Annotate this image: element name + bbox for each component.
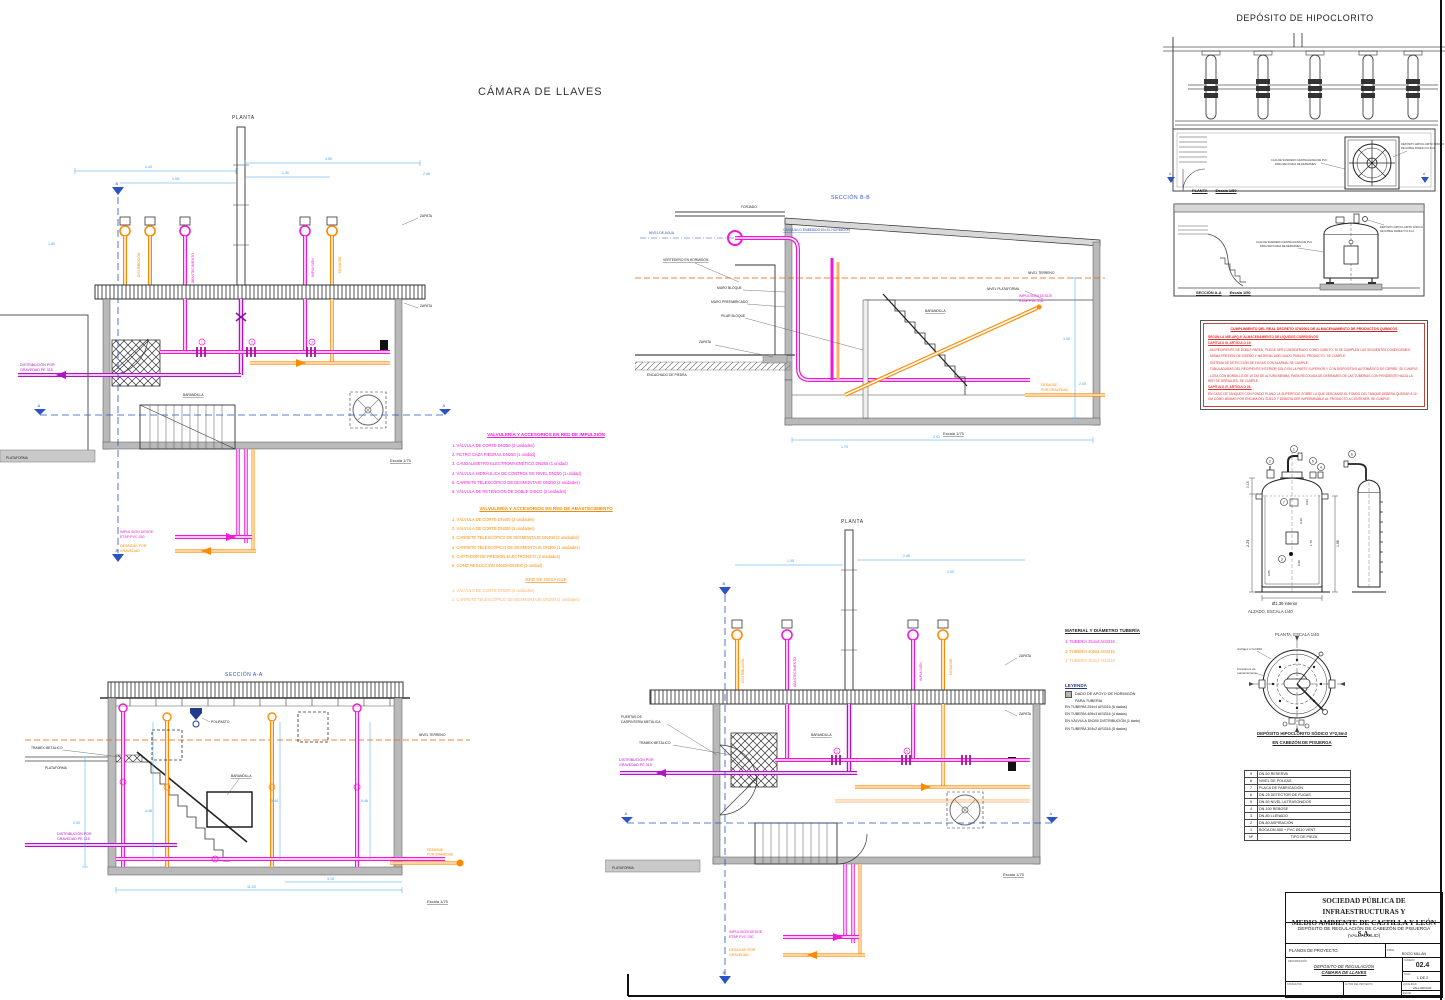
svg-text:B: B (723, 581, 726, 586)
title-block: SOCIEDAD PÚBLICA DE INFRAESTRUCTURAS Y M… (1285, 892, 1443, 998)
svg-text:6: 6 (1351, 453, 1353, 457)
svg-text:DE DOBLE PARED V=2,5m3: DE DOBLE PARED V=2,5m3 (1380, 229, 1414, 233)
svg-text:CAJA DE SUMIDERO CENTRALIZADA: CAJA DE SUMIDERO CENTRALIZADA DE PVC (1271, 158, 1327, 162)
plan-bottom-drawing: PLANTA 1.95 2.46 1.00 DISTRIBUCIÓN ABAST… (605, 505, 1065, 990)
drawing-title: DENOMINACIÓN DEPÓSITO DE REGULACIÓN CÁMA… (1286, 958, 1402, 981)
svg-text:2.00: 2.00 (1079, 382, 1086, 386)
table-row: 6DN-25 DETECTOR DE FUGAS (1245, 792, 1351, 799)
svg-text:1.00: 1.00 (947, 570, 954, 574)
svg-text:B: B (723, 970, 726, 975)
svg-text:IMPULSIÓN DESDE: IMPULSIÓN DESDE (1019, 293, 1053, 298)
localidad-cell: LOCALIDADVALLADOLID (1402, 982, 1442, 990)
svg-text:1.40: 1.40 (282, 171, 289, 175)
table-row: 3DN-80 LLENADO (1245, 813, 1351, 820)
svg-text:4.50: 4.50 (325, 157, 332, 161)
svg-text:0.90: 0.90 (1297, 560, 1301, 566)
dims: 1.95 2.46 1.00 (735, 554, 1025, 574)
fan-icon (947, 792, 983, 828)
svg-text:PARA RECOGIDA DE DERRAMES: PARA RECOGIDA DE DERRAMES (1275, 162, 1316, 166)
svg-text:PLATAFORMA: PLATAFORMA (45, 766, 68, 770)
legend-item: 1. VÁLVULA DE CORTE DN400 (2 unidades) (450, 515, 642, 524)
tramex-grating (112, 340, 160, 386)
svg-text:A: A (38, 403, 41, 408)
svg-text:0.30: 0.30 (1299, 518, 1303, 524)
svg-text:1.70: 1.70 (841, 445, 848, 449)
svg-text:5: 5 (251, 340, 253, 344)
apq-line: - UN RECIPIENTE DE DOBLE PARED, PUEDE SE… (1208, 348, 1420, 353)
svg-text:3: 3 (1281, 558, 1283, 562)
svg-text:2.29: 2.29 (1246, 540, 1250, 547)
section-bb-scale: Escala 1/75 (943, 431, 965, 436)
svg-text:FORJADO: FORJADO (741, 205, 757, 209)
plan-top-scale: Escala 1/75 (390, 458, 412, 463)
svg-text:NIVEL TERRENO: NIVEL TERRENO (1028, 271, 1055, 275)
vertical-pipes (119, 704, 361, 867)
svg-text:GRAVEDAD: GRAVEDAD (120, 549, 140, 553)
sheet-count: HOJA 1 DE 2 (1403, 972, 1442, 981)
table-row: 8NIVEL DE POLEAS (1245, 778, 1351, 785)
apq-line: CAPÍTULO IV, ARTÍCULO 24: (1208, 385, 1420, 390)
svg-text:4.48: 4.48 (145, 809, 152, 813)
hipo-section-drawing: CAJA DE SUMIDERO CENTRALIZADA DE PVC PAR… (1168, 198, 1430, 303)
pipe-runs: 1 5 (620, 704, 1030, 801)
parts-table: 9DN-50 RESERVA 8NIVEL DE POLEAS 7PLACA D… (1244, 770, 1351, 841)
svg-text:3.40: 3.40 (1063, 337, 1070, 341)
svg-text:PLATAFORMA: PLATAFORMA (612, 866, 635, 870)
svg-text:ABASTECIMIENTO: ABASTECIMIENTO (793, 657, 797, 687)
svg-text:7: 7 (1283, 501, 1285, 505)
sheet-border-corner (627, 974, 629, 996)
svg-text:3: 3 (311, 340, 313, 344)
svg-text:IMPULSIÓN DESDE: IMPULSIÓN DESDE (120, 529, 154, 534)
svg-text:A: A (1423, 172, 1426, 176)
manifold-pipes (1163, 33, 1445, 191)
apq-line: - LOSA CON BORDILLO DE 10 CM DE ALTURA M… (1208, 374, 1420, 384)
svg-text:NIVEL PLATAFORMA: NIVEL PLATAFORMA (987, 287, 1020, 291)
svg-text:DESAGÜE: DESAGÜE (427, 848, 444, 852)
leyenda-line: EN TUBERÍA 254x4 AISI316 (6 dados) (1065, 704, 1240, 711)
svg-text:0.15: 0.15 (1246, 481, 1250, 488)
table-row: 9DN-50 RESERVA (1245, 771, 1351, 778)
svg-text:1.95: 1.95 (787, 559, 794, 563)
svg-text:ZAPATA: ZAPATA (1019, 654, 1032, 658)
svg-text:1: 1 (836, 749, 838, 753)
section-aa-title: SECCIÓN A-A (225, 671, 263, 678)
svg-text:PUERTAS DE: PUERTAS DE (621, 715, 643, 719)
svg-text:MURO PREFABRICADO: MURO PREFABRICADO (711, 300, 748, 304)
svg-text:5.46: 5.46 (361, 799, 368, 803)
svg-text:CAJA DE SUMIDERO CENTRALIZADA: CAJA DE SUMIDERO CENTRALIZADA DE PVC (1256, 240, 1312, 244)
apq-line: CAPÍTULO III, ARTÍCULO 19: (1208, 341, 1420, 346)
polipasto-icon (190, 708, 202, 727)
leyenda-dado-1: DADO DE APOYO DE HORMIGÓN (1075, 691, 1135, 698)
svg-text:1.60: 1.60 (48, 242, 55, 246)
svg-text:1: 1 (1293, 448, 1295, 452)
svg-text:2.40: 2.40 (145, 165, 152, 169)
dist-label-2: GRAVEDAD PE 315 (20, 368, 53, 372)
svg-text:DESAGÜE POR: DESAGÜE POR (729, 948, 756, 952)
apq-title: CUMPLIMIENTO DEL REAL DECRETO 379/2001 D… (1208, 327, 1420, 331)
zapata-callouts: ZAPATA ZAPATA (1005, 654, 1032, 716)
material-item: 3. TUBERÍA 304x2 AISI316 (1065, 656, 1240, 666)
svg-text:DISTRIBUCIÓN POR: DISTRIBUCIÓN POR (619, 757, 654, 762)
svg-text:NIVEL DE AGUA: NIVEL DE AGUA (649, 231, 675, 235)
svg-text:IMPULSIÓN DESDE: IMPULSIÓN DESDE (729, 929, 763, 934)
legend-item: 4. VÁLVULA HIDRÁULICA DE CONTROL DE NIVE… (450, 469, 642, 478)
legend-abastecimiento-title: VALVULERÍA Y ACCESORIOS EN RED DE ABASTE… (450, 506, 642, 511)
legend-desague-title: RED DE DESAGÜE (450, 577, 642, 582)
svg-text:mantenimiento: mantenimiento (1237, 671, 1257, 675)
svg-text:2: 2 (214, 857, 216, 861)
svg-text:Ø1.36 interior: Ø1.36 interior (1272, 601, 1298, 606)
svg-text:GRAVEDAD PE 315: GRAVEDAD PE 315 (619, 763, 652, 767)
leyenda-title: LEYENDA (1065, 683, 1240, 688)
svg-text:DESAGÜE: DESAGÜE (949, 658, 953, 675)
left-platform (0, 315, 95, 462)
tramex-grating (731, 733, 777, 787)
roof (100, 682, 410, 706)
hipo-plan-label: PLANTAEscala 1/50 (1192, 188, 1244, 193)
svg-text:3.15: 3.15 (327, 877, 334, 881)
svg-text:ETAP PVC 250: ETAP PVC 250 (1019, 299, 1043, 303)
legend-item: 2. FILTRO CAZA PIEDRAS DN250 (1 unidad) (450, 450, 642, 459)
svg-text:ENCACHADO DE PIEDRA: ENCACHADO DE PIEDRA (647, 373, 688, 377)
legend-item: 5. CARRETE TELESCÓPICO DE DESMONTAJE DN2… (450, 478, 642, 487)
legend-item: 2. CARRETE TELESCÓPICO DE DESMONTAJE DN2… (450, 595, 642, 604)
tank-side (1344, 461, 1386, 592)
svg-text:IMPULSIÓN: IMPULSIÓN (918, 662, 923, 681)
center-wall (233, 127, 249, 285)
svg-text:IMPULSIÓN: IMPULSIÓN (310, 258, 315, 277)
svg-text:B: B (116, 548, 119, 553)
section-line-b: B B (719, 581, 731, 984)
section-aa-drawing: SECCIÓN A-A POLIPASTO NIVEL TERRENO TRAM… (25, 662, 470, 907)
svg-text:POR GRAVEDAD: POR GRAVEDAD (1041, 388, 1069, 392)
svg-text:2.46: 2.46 (903, 554, 910, 558)
section-bb-drawing: SECCIÓN B-B FORJADO NIVEL DE AGUA VERTED… (635, 190, 1105, 480)
section-bb-title: SECCIÓN B-B (831, 194, 870, 201)
svg-text:A: A (1050, 811, 1053, 816)
legend-item: 1. VÁLVULA DE CORTE DN200 (2 unidades) (450, 586, 642, 595)
sheet-number: NÚMERO 02.4 (1403, 958, 1442, 972)
bottom-pipes (783, 864, 865, 959)
leyenda-line: EN VÁLVULA DN300 DISTRIBUCIÓN (1 dado) (1065, 718, 1240, 725)
apq-line: - MISMA PRESIÓN DE DISEÑO Y MATERIAL ADE… (1208, 354, 1420, 359)
sheet-border-right (1440, 0, 1442, 1000)
svg-text:BARANDILLA: BARANDILLA (925, 309, 946, 313)
tank-plan-circles (1249, 636, 1345, 732)
apq-compliance-block: CUMPLIMIENTO DEL REAL DECRETO 379/2001 D… (1200, 320, 1428, 410)
legend-abastecimiento: VALVULERÍA Y ACCESORIOS EN RED DE ABASTE… (450, 506, 642, 570)
svg-text:A: A (1169, 172, 1172, 176)
plan-top-title: PLANTA (232, 115, 255, 121)
svg-text:DISTRIBUCIÓN: DISTRIBUCIÓN (740, 658, 745, 683)
apq-line: - TUBULADURAS DEL RECIPIENTE INTERIOR SO… (1208, 367, 1420, 372)
legend-item: 6. VÁLVULA DE RETENCIÓN DE DOBLE DISCO (… (450, 487, 642, 496)
tank-plan-symbol (1345, 137, 1399, 189)
legend-item: 2. VÁLVULA DE CORTE DN300 (1 unidades) (450, 524, 642, 533)
svg-text:GRAVEDAD: GRAVEDAD (729, 953, 749, 957)
legend-item: 1. VÁLVULA DE CORTE DN250 (3 unidades) (450, 441, 642, 450)
consultor-cell: CONSULTOR (1286, 982, 1344, 995)
legend-desague: RED DE DESAGÜE 1. VÁLVULA DE CORTE DN200… (450, 577, 642, 604)
drawing-sheet: { "sheet": { "main_title": "CÁMARA DE LL… (0, 0, 1445, 1000)
svg-text:2.00: 2.00 (73, 821, 80, 825)
svg-text:PILAR BLOQUE: PILAR BLOQUE (721, 314, 746, 318)
table-footer-row: NºTIPO DE PIEZA (1245, 834, 1351, 841)
apq-line: SEGÚN LA MIE-APQ-6 'ALMACENAMIENTO DE LÍ… (1208, 335, 1420, 340)
tank-elevation-drawing: 1 2 5 4 7 3 6 0.15 2.29 1.98 0.03 0.30 1… (1240, 442, 1445, 614)
signature-cell: FIRMA ROCÍO MILLÁN (1386, 944, 1442, 957)
center-wall (841, 530, 857, 690)
svg-text:POLIPASTO: POLIPASTO (211, 720, 230, 724)
leyenda-line: EN TUBERÍA 406x3 AISI316 (4 dados) (1065, 711, 1240, 718)
legend-item: 3. CARRETE TELESCÓPIC0 DE DESMONTAJE DN4… (450, 533, 642, 542)
svg-text:2.91: 2.91 (933, 435, 940, 439)
svg-text:DESAGÜE: DESAGÜE (338, 256, 342, 273)
dist-label-1: DISTRIBUCIÓN POR (20, 362, 55, 367)
legend-impulsion-title: VALVULERÍA Y ACCESORIOS EN RED DE IMPULS… (450, 432, 642, 437)
svg-text:0.03: 0.03 (1305, 499, 1309, 505)
sheet-border-bottom (628, 995, 1442, 997)
svg-text:A: A (443, 403, 446, 408)
table-row: 4DN-100 REBOSE (1245, 806, 1351, 813)
svg-text:CARPINTERÍA METÁLICA: CARPINTERÍA METÁLICA (621, 720, 661, 724)
legend-item: 3. CAUDALÍMETRO ELECTROMAGNÉTICO DN250 (… (450, 459, 642, 468)
svg-text:MURO BLOQUE: MURO BLOQUE (717, 286, 743, 290)
svg-text:1: 1 (201, 340, 203, 344)
svg-text:11.20: 11.20 (247, 885, 256, 889)
material-legend: MATERIAL Y DIÁMETRO TUBERÍA 1. TUBERÍA 2… (1065, 628, 1240, 666)
svg-text:ETAP PVC 250: ETAP PVC 250 (729, 935, 753, 939)
svg-text:NIVEL TERRENO: NIVEL TERRENO (419, 733, 446, 737)
pipe-risers: DISTRIBUCIÓN ABASTECIMIENTO IMPULSIÓN DE… (120, 217, 342, 285)
anclajes-label: Anclajes c/ tal Ø16 (1237, 647, 1262, 651)
legend-item: 6. CONO REDUCCIÓN DN400-DN300 (1 unidad) (450, 561, 642, 570)
material-title: MATERIAL Y DIÁMETRO TUBERÍA (1065, 628, 1240, 633)
svg-text:ZAPATA: ZAPATA (1019, 712, 1032, 716)
plataforma-label: PLATAFORMA (6, 456, 29, 460)
svg-text:PARA RECOGIDA DE DERRAMES: PARA RECOGIDA DE DERRAMES (1260, 244, 1301, 248)
fan-icon (350, 392, 386, 428)
svg-text:A: A (625, 811, 628, 816)
material-item: 2. TUBERÍA 406x3 AISI316 (1065, 647, 1240, 657)
svg-text:ZAPATA: ZAPATA (699, 340, 712, 344)
hipo-section-label: SECCIÓN A-AEscala 1/50 (1196, 290, 1259, 295)
alzado-label: ALZADO, ESCALA 1/40 (1248, 609, 1293, 614)
hipo-title: DEPÓSITO DE HIPOCLORITO (1165, 13, 1445, 23)
plan-top-drawing: PLANTA 2.40 1.95 4.50 1.40 2.46 1.60 DIS… (0, 105, 465, 565)
legend-item: 5. CAPTADOR DE PRESIÓN ELECTRÓNICO (2 un… (450, 552, 642, 561)
project-name: DEPÓSITO DE REGULACIÓN DE CABEZÓN DE PIS… (1286, 923, 1442, 944)
section-aa-scale: Escala 1/75 (427, 899, 449, 904)
svg-text:2: 2 (1269, 460, 1271, 464)
svg-text:4: 4 (1320, 466, 1322, 470)
hipo-plan-drawing: CAJA DE SUMIDERO CENTRALIZADA DE PVC PAR… (1163, 33, 1445, 195)
table-row: 2DN-80 ASPIRACIÓN (1245, 820, 1351, 827)
plan-bottom-scale: Escala 1/75 (1003, 872, 1025, 877)
autor-cell: AUTOR DEL PROYECTO (1344, 982, 1402, 995)
concrete-block-icon (1065, 691, 1072, 698)
svg-text:VERTEDERO EN HORMIGÓN: VERTEDERO EN HORMIGÓN (663, 257, 709, 262)
pipe-risers: DISTRIBUCIÓN ABASTECIMIENTO IMPULSIÓN DE… (732, 620, 953, 690)
svg-text:DISTRIBUCIÓN POR: DISTRIBUCIÓN POR (57, 831, 92, 836)
material-item: 1. TUBERÍA 254x4 AISI316 (1065, 637, 1240, 647)
svg-text:0.05: 0.05 (1267, 570, 1271, 576)
svg-text:DEPÓSITO HIPOCLORITO SÓDICO: DEPÓSITO HIPOCLORITO SÓDICO (1401, 141, 1444, 146)
svg-text:2.46: 2.46 (423, 172, 430, 176)
svg-text:BARANDILLA: BARANDILLA (231, 774, 252, 778)
tank-caption-2: EN CABEZÓN DE PISUERGA (1212, 740, 1392, 745)
svg-text:B: B (116, 181, 119, 186)
svg-text:ZAPATA: ZAPATA (420, 214, 433, 218)
svg-text:POR GRAVEDAD: POR GRAVEDAD (427, 853, 454, 857)
svg-text:TRAMEX METÁLICO: TRAMEX METÁLICO (639, 741, 671, 745)
svg-text:1.70: 1.70 (1309, 540, 1313, 546)
svg-text:1.98: 1.98 (1336, 540, 1340, 547)
svg-text:ZAPATA: ZAPATA (420, 304, 433, 308)
svg-text:DISTRIBUCIÓN: DISTRIBUCIÓN (136, 252, 141, 277)
svg-text:DESAGÜE: DESAGÜE (1041, 383, 1058, 387)
table-row: 1BOCA DN-500 + PVC Ø110 VENT (1245, 827, 1351, 834)
svg-text:ABASTECIMIENTO: ABASTECIMIENTO (191, 253, 195, 283)
plan-bottom-title: PLANTA (841, 519, 864, 525)
section-line-a: A A (34, 403, 451, 415)
svg-text:ETAP PVC 250: ETAP PVC 250 (120, 535, 144, 539)
svg-text:5.44: 5.44 (271, 799, 278, 803)
apq-line: - SISTEMA DE DETECCIÓN DE FUGAS CON ALAR… (1208, 361, 1420, 366)
svg-text:DE DOBLE PARED V=2,5m3: DE DOBLE PARED V=2,5m3 (1401, 146, 1435, 150)
table-row: 5DN-50 NIVEL ULTRASONIDOS (1245, 799, 1351, 806)
phase-label: PLANOS DE PROYECTO. (1286, 944, 1386, 957)
svg-text:DESAGÜE POR: DESAGÜE POR (120, 544, 147, 548)
legend-impulsion: VALVULERÍA Y ACCESORIOS EN RED DE IMPULS… (450, 432, 642, 496)
bottom-pipes (175, 449, 256, 555)
section-line-a: A A (621, 811, 1058, 823)
leyenda-block: LEYENDA DADO DE APOYO DE HORMIGÓN PARA T… (1065, 683, 1240, 733)
tank-caption-1: DEPÓSITO HIPOCLORITO SÓDICO V=2,5m3 (1212, 731, 1392, 736)
company-name: SOCIEDAD PÚBLICA DE INFRAESTRUCTURAS Y M… (1286, 893, 1442, 923)
pipe-runs: 1 5 3 (18, 299, 390, 379)
page-title: CÁMARA DE LLAVES (478, 86, 603, 98)
apq-line: EN CASO DE TANQUES CON FONDO PLANO LA SU… (1208, 392, 1420, 402)
svg-text:BARANDILLA: BARANDILLA (811, 733, 832, 737)
svg-text:TRAMEX METÁLICO: TRAMEX METÁLICO (31, 746, 63, 750)
barandilla-label: BARANDILLA (183, 393, 204, 397)
svg-text:5: 5 (1312, 460, 1314, 464)
svg-text:1.95: 1.95 (172, 177, 179, 181)
table-row: 7PLACA DE FABRICACIÓN (1245, 785, 1351, 792)
svg-text:5: 5 (906, 749, 908, 753)
legend-item: 4. CARRETE TELESCÓPICO DE DESMONTAJE DN3… (450, 543, 642, 552)
